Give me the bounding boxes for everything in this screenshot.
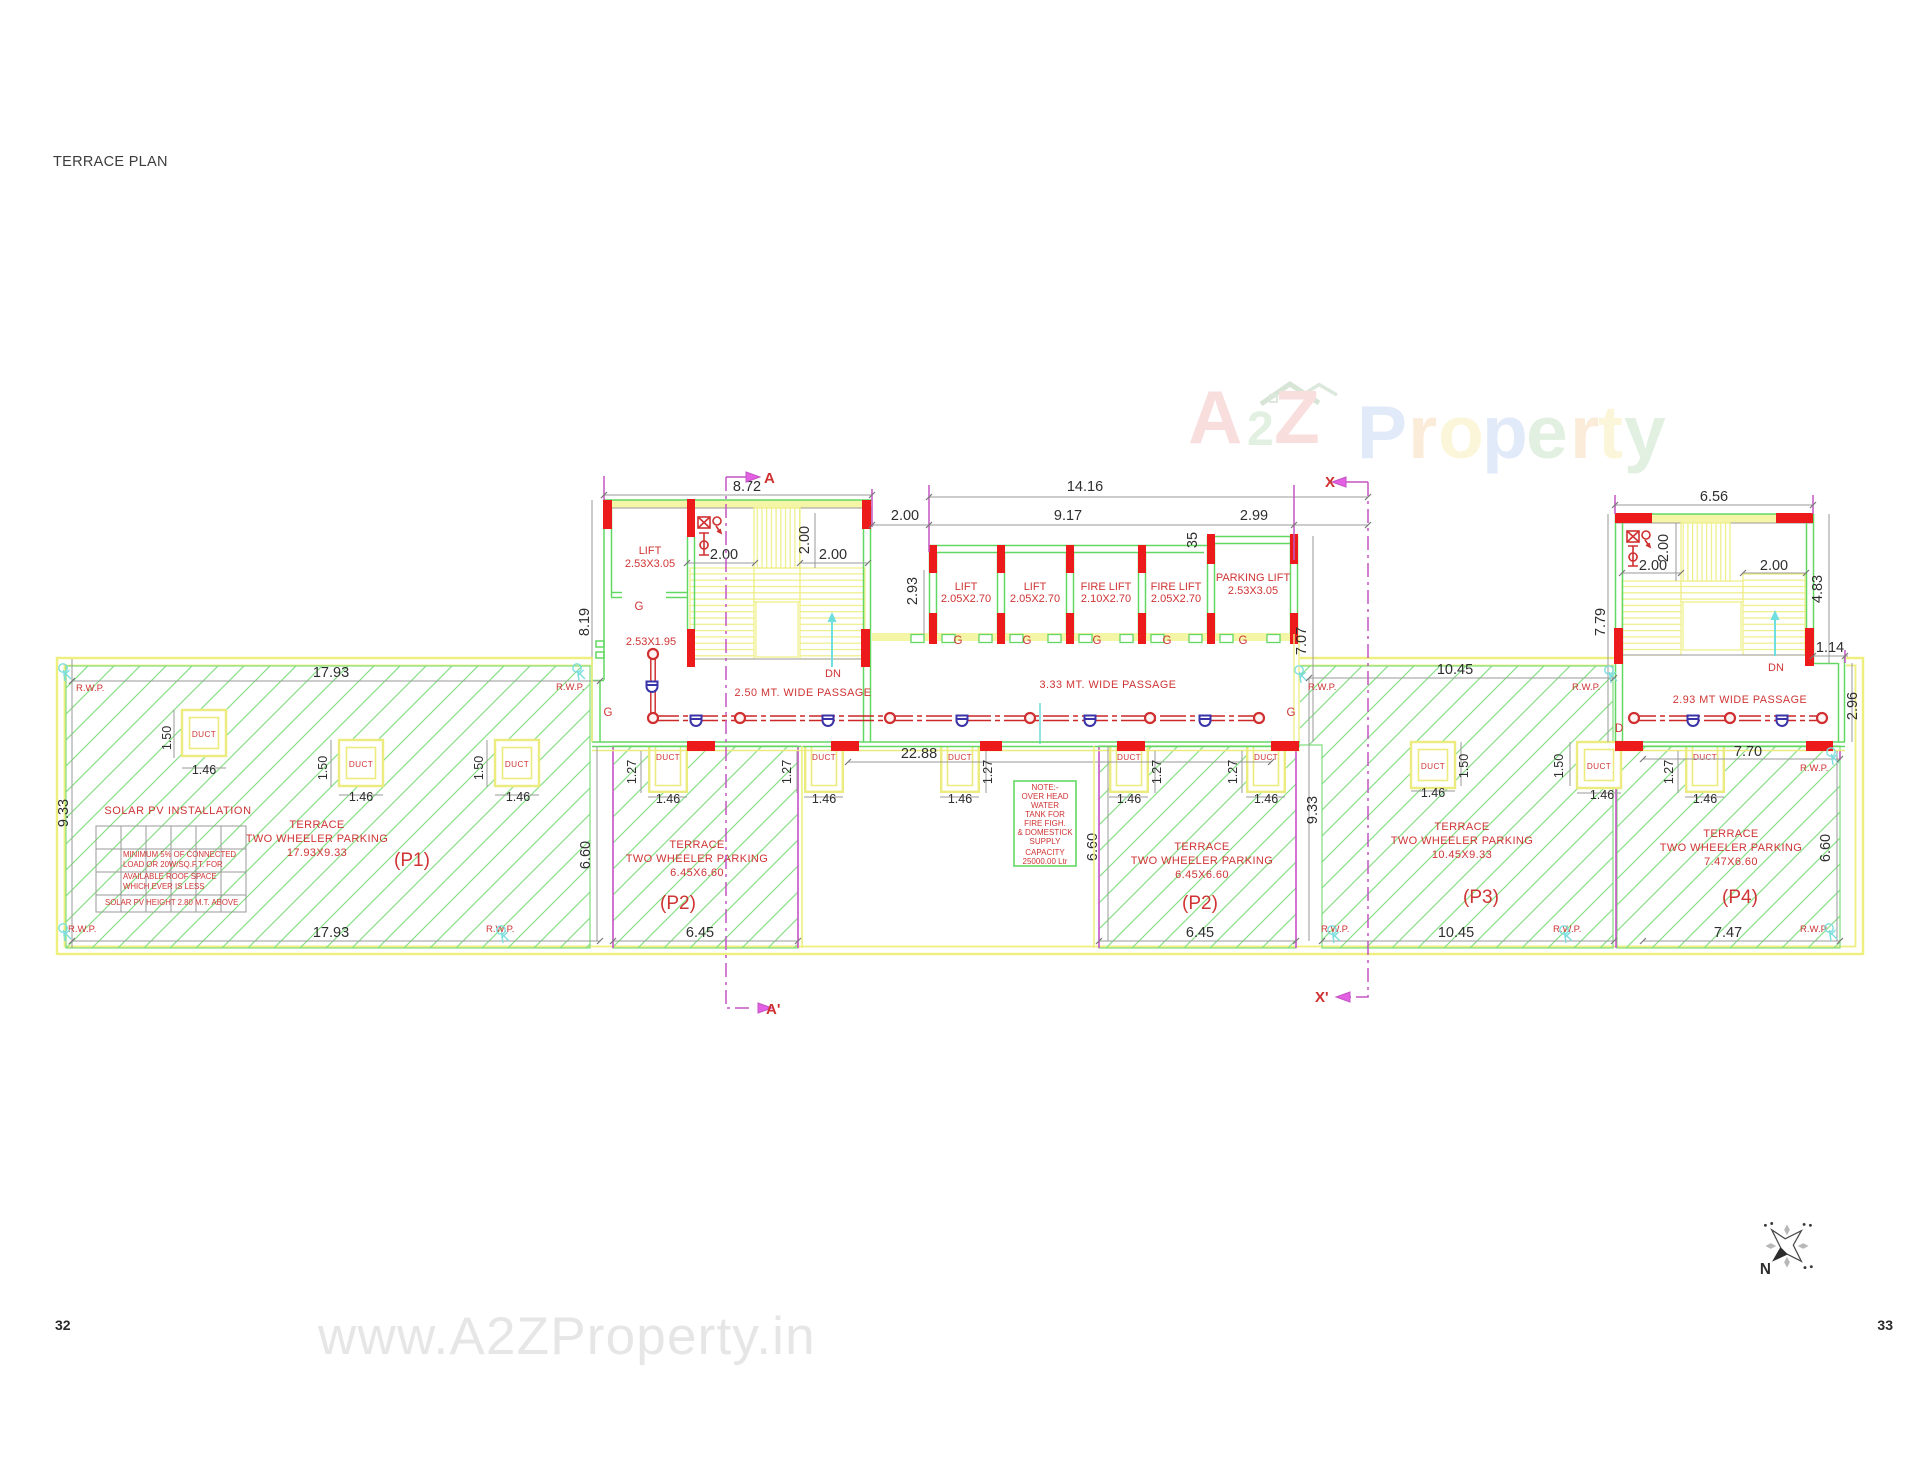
svg-text:1.50: 1.50 bbox=[1457, 754, 1471, 778]
svg-text:33: 33 bbox=[1877, 1317, 1893, 1333]
svg-text:2.00: 2.00 bbox=[797, 526, 813, 554]
svg-text:(P2): (P2) bbox=[660, 893, 696, 914]
svg-text:PARKING LIFT: PARKING LIFT bbox=[1216, 572, 1291, 584]
svg-text:(P3): (P3) bbox=[1463, 887, 1499, 908]
svg-text:SUPPLY: SUPPLY bbox=[1030, 837, 1062, 846]
svg-text:FIRE LIFT: FIRE LIFT bbox=[1151, 581, 1202, 593]
svg-text:22.88: 22.88 bbox=[901, 746, 937, 762]
svg-text:G: G bbox=[1163, 635, 1172, 647]
svg-text:1.27: 1.27 bbox=[1662, 760, 1676, 784]
svg-text:1.46: 1.46 bbox=[349, 790, 373, 804]
svg-text:TWO WHEELER PARKING: TWO WHEELER PARKING bbox=[1391, 835, 1533, 847]
svg-text:6.45: 6.45 bbox=[686, 925, 714, 941]
svg-text:6.60: 6.60 bbox=[1085, 833, 1101, 861]
svg-text:10.45: 10.45 bbox=[1438, 925, 1474, 941]
svg-text:1.46: 1.46 bbox=[1421, 786, 1445, 800]
svg-text:LIFT: LIFT bbox=[955, 581, 978, 593]
svg-text:R.W.P.: R.W.P. bbox=[1800, 763, 1828, 774]
svg-text:2.00: 2.00 bbox=[891, 508, 919, 524]
svg-text:X: X bbox=[1325, 474, 1335, 491]
svg-text:o: o bbox=[1438, 390, 1484, 474]
svg-text:1.46: 1.46 bbox=[1117, 792, 1141, 806]
svg-text:1.27: 1.27 bbox=[981, 760, 995, 784]
svg-text:MINIMUM 5% OF CONNECTED: MINIMUM 5% OF CONNECTED bbox=[123, 850, 236, 859]
svg-text:2.53X3.05: 2.53X3.05 bbox=[625, 558, 675, 570]
svg-text:A: A bbox=[764, 470, 775, 487]
svg-text:35: 35 bbox=[1185, 532, 1201, 548]
svg-text:1.46: 1.46 bbox=[506, 790, 530, 804]
svg-text:WHICH EVER IS LESS: WHICH EVER IS LESS bbox=[123, 882, 204, 891]
svg-text:P: P bbox=[1357, 390, 1407, 474]
svg-text:TERRACE PLAN: TERRACE PLAN bbox=[53, 154, 168, 170]
svg-text:2.00: 2.00 bbox=[1760, 558, 1788, 574]
svg-text:Z: Z bbox=[1274, 375, 1320, 459]
svg-text:R.W.P.: R.W.P. bbox=[1572, 682, 1600, 693]
svg-text:2.00: 2.00 bbox=[819, 547, 847, 563]
svg-text:N: N bbox=[1760, 1261, 1771, 1278]
svg-text:R.W.P.: R.W.P. bbox=[1800, 924, 1828, 935]
svg-text:10.45: 10.45 bbox=[1437, 662, 1473, 678]
svg-text:1.27: 1.27 bbox=[1226, 760, 1240, 784]
svg-text:2.05X2.70: 2.05X2.70 bbox=[1010, 593, 1060, 605]
svg-text:TWO WHEELER PARKING: TWO WHEELER PARKING bbox=[1660, 842, 1802, 854]
svg-text:(P1): (P1) bbox=[394, 850, 430, 871]
svg-text:1.46: 1.46 bbox=[1693, 792, 1717, 806]
svg-text:1.46: 1.46 bbox=[812, 792, 836, 806]
svg-text:7.07: 7.07 bbox=[1294, 627, 1310, 655]
svg-text:2.93 MT WIDE PASSAGE: 2.93 MT WIDE PASSAGE bbox=[1673, 694, 1807, 706]
svg-text:6.45X6.60: 6.45X6.60 bbox=[1175, 869, 1229, 881]
svg-text:R.W.P.: R.W.P. bbox=[1308, 682, 1336, 693]
svg-text:1.46: 1.46 bbox=[948, 792, 972, 806]
svg-text:R.W.P.: R.W.P. bbox=[556, 682, 584, 693]
svg-text:D: D bbox=[1615, 723, 1623, 735]
svg-text:OVER HEAD: OVER HEAD bbox=[1021, 792, 1068, 801]
svg-text:2.99: 2.99 bbox=[1240, 508, 1268, 524]
svg-text:SOLAR PV HEIGHT 2.80 M.T. ABO: SOLAR PV HEIGHT 2.80 M.T. ABOVE bbox=[105, 898, 238, 907]
svg-text:17.93: 17.93 bbox=[313, 665, 349, 681]
svg-text:DN: DN bbox=[1768, 662, 1784, 674]
svg-text:CAPACITY: CAPACITY bbox=[1025, 848, 1065, 857]
svg-text:t: t bbox=[1598, 390, 1623, 474]
svg-text:www.A2ZProperty.in: www.A2ZProperty.in bbox=[317, 1307, 816, 1366]
svg-text:TWO WHEELER PARKING: TWO WHEELER PARKING bbox=[1131, 855, 1273, 867]
svg-text:7.70: 7.70 bbox=[1734, 744, 1762, 760]
svg-text:1.27: 1.27 bbox=[780, 760, 794, 784]
svg-text:14.16: 14.16 bbox=[1067, 479, 1103, 495]
svg-text:TERRACE: TERRACE bbox=[1174, 841, 1229, 853]
svg-text:FIRE LIFT: FIRE LIFT bbox=[1081, 581, 1132, 593]
svg-text:TANK FOR: TANK FOR bbox=[1025, 810, 1065, 819]
svg-text:TERRACE: TERRACE bbox=[289, 819, 344, 831]
svg-text:2.53X3.05: 2.53X3.05 bbox=[1228, 585, 1278, 597]
svg-text:SOLAR PV INSTALLATION: SOLAR PV INSTALLATION bbox=[104, 805, 251, 817]
svg-text:TERRACE: TERRACE bbox=[1434, 821, 1489, 833]
svg-text:G: G bbox=[1287, 707, 1296, 719]
svg-text:9.17: 9.17 bbox=[1054, 508, 1082, 524]
svg-text:6.60: 6.60 bbox=[578, 841, 594, 869]
svg-text:LIFT: LIFT bbox=[1024, 581, 1047, 593]
svg-text:1.50: 1.50 bbox=[1552, 754, 1566, 778]
svg-text:r: r bbox=[1408, 390, 1437, 474]
svg-text:1.46: 1.46 bbox=[1590, 788, 1614, 802]
svg-text:A: A bbox=[1188, 375, 1242, 459]
svg-text:2.50 MT. WIDE PASSAGE: 2.50 MT. WIDE PASSAGE bbox=[735, 687, 872, 699]
svg-text:R.W.P.: R.W.P. bbox=[76, 683, 104, 694]
svg-text:LIFT: LIFT bbox=[639, 545, 662, 557]
svg-text:1.46: 1.46 bbox=[656, 792, 680, 806]
svg-text:32: 32 bbox=[55, 1317, 71, 1333]
svg-text:G: G bbox=[954, 635, 963, 647]
svg-text:2.00: 2.00 bbox=[1656, 534, 1672, 562]
svg-text:8.19: 8.19 bbox=[577, 608, 593, 636]
svg-text:& DOMESTICK: & DOMESTICK bbox=[1017, 828, 1073, 837]
svg-text:7.47: 7.47 bbox=[1714, 925, 1742, 941]
svg-text:1.50: 1.50 bbox=[316, 756, 330, 780]
svg-text:1.46: 1.46 bbox=[1254, 792, 1278, 806]
svg-text:G: G bbox=[1239, 635, 1248, 647]
svg-text:G: G bbox=[604, 707, 613, 719]
svg-text:TWO WHEELER PARKING: TWO WHEELER PARKING bbox=[246, 833, 388, 845]
svg-text:1.50: 1.50 bbox=[472, 756, 486, 780]
svg-text:3.33 MT. WIDE PASSAGE: 3.33 MT. WIDE PASSAGE bbox=[1040, 679, 1177, 691]
svg-text:17.93: 17.93 bbox=[313, 925, 349, 941]
svg-text:1.50: 1.50 bbox=[160, 726, 174, 750]
svg-text:TWO WHEELER PARKING: TWO WHEELER PARKING bbox=[626, 853, 768, 865]
svg-text:(P2): (P2) bbox=[1182, 893, 1218, 914]
svg-text:G: G bbox=[1093, 635, 1102, 647]
svg-text:2: 2 bbox=[1247, 403, 1274, 456]
svg-text:p: p bbox=[1482, 390, 1528, 474]
svg-text:G: G bbox=[635, 601, 644, 613]
svg-text:2.10X2.70: 2.10X2.70 bbox=[1081, 593, 1131, 605]
svg-text:6.60: 6.60 bbox=[1818, 834, 1834, 862]
svg-text:WATER: WATER bbox=[1031, 801, 1059, 810]
svg-text:25000.00 Ltr: 25000.00 Ltr bbox=[1023, 857, 1068, 866]
svg-text:y: y bbox=[1624, 390, 1666, 474]
svg-text:9.33: 9.33 bbox=[56, 799, 72, 827]
svg-text:10.45X9.33: 10.45X9.33 bbox=[1432, 849, 1492, 861]
svg-text:1.27: 1.27 bbox=[625, 760, 639, 784]
svg-text:6.45X6.60: 6.45X6.60 bbox=[670, 867, 724, 879]
svg-text:9.33: 9.33 bbox=[1305, 796, 1321, 824]
svg-text:TERRACE: TERRACE bbox=[669, 839, 724, 851]
svg-text:DN: DN bbox=[825, 668, 841, 680]
svg-text:LOAD OR 20W/SQ.F.T. FOR: LOAD OR 20W/SQ.F.T. FOR bbox=[123, 860, 223, 869]
svg-text:2.05X2.70: 2.05X2.70 bbox=[941, 593, 991, 605]
svg-text:TERRACE: TERRACE bbox=[1703, 828, 1758, 840]
svg-text:(P4): (P4) bbox=[1722, 887, 1758, 908]
svg-text:4.83: 4.83 bbox=[1810, 575, 1826, 603]
svg-text:AVAILABLE ROOF SPACE: AVAILABLE ROOF SPACE bbox=[123, 872, 217, 881]
svg-text:7.47X6.60: 7.47X6.60 bbox=[1704, 856, 1758, 868]
svg-text:2.00: 2.00 bbox=[710, 547, 738, 563]
svg-text:G: G bbox=[1023, 635, 1032, 647]
svg-text:17.93X9.33: 17.93X9.33 bbox=[287, 847, 347, 859]
svg-text:1.14: 1.14 bbox=[1816, 640, 1844, 656]
svg-text:6.45: 6.45 bbox=[1186, 925, 1214, 941]
svg-text:R.W.P.: R.W.P. bbox=[68, 924, 96, 935]
svg-text:NOTE:-: NOTE:- bbox=[1031, 783, 1058, 792]
svg-text:A': A' bbox=[766, 1001, 780, 1018]
svg-text:X': X' bbox=[1315, 989, 1329, 1006]
svg-text:2.53X1.95: 2.53X1.95 bbox=[626, 636, 676, 648]
svg-text:2.05X2.70: 2.05X2.70 bbox=[1151, 593, 1201, 605]
svg-text:1.27: 1.27 bbox=[1150, 760, 1164, 784]
svg-text:1.46: 1.46 bbox=[192, 763, 216, 777]
svg-text:7.79: 7.79 bbox=[1593, 608, 1609, 636]
svg-text:FIRE FIGH.: FIRE FIGH. bbox=[1024, 819, 1066, 828]
svg-text:r: r bbox=[1570, 390, 1599, 474]
svg-text:2.93: 2.93 bbox=[905, 577, 921, 605]
svg-text:6.56: 6.56 bbox=[1700, 489, 1728, 505]
svg-text:2.96: 2.96 bbox=[1845, 692, 1861, 720]
svg-text:e: e bbox=[1526, 390, 1568, 474]
